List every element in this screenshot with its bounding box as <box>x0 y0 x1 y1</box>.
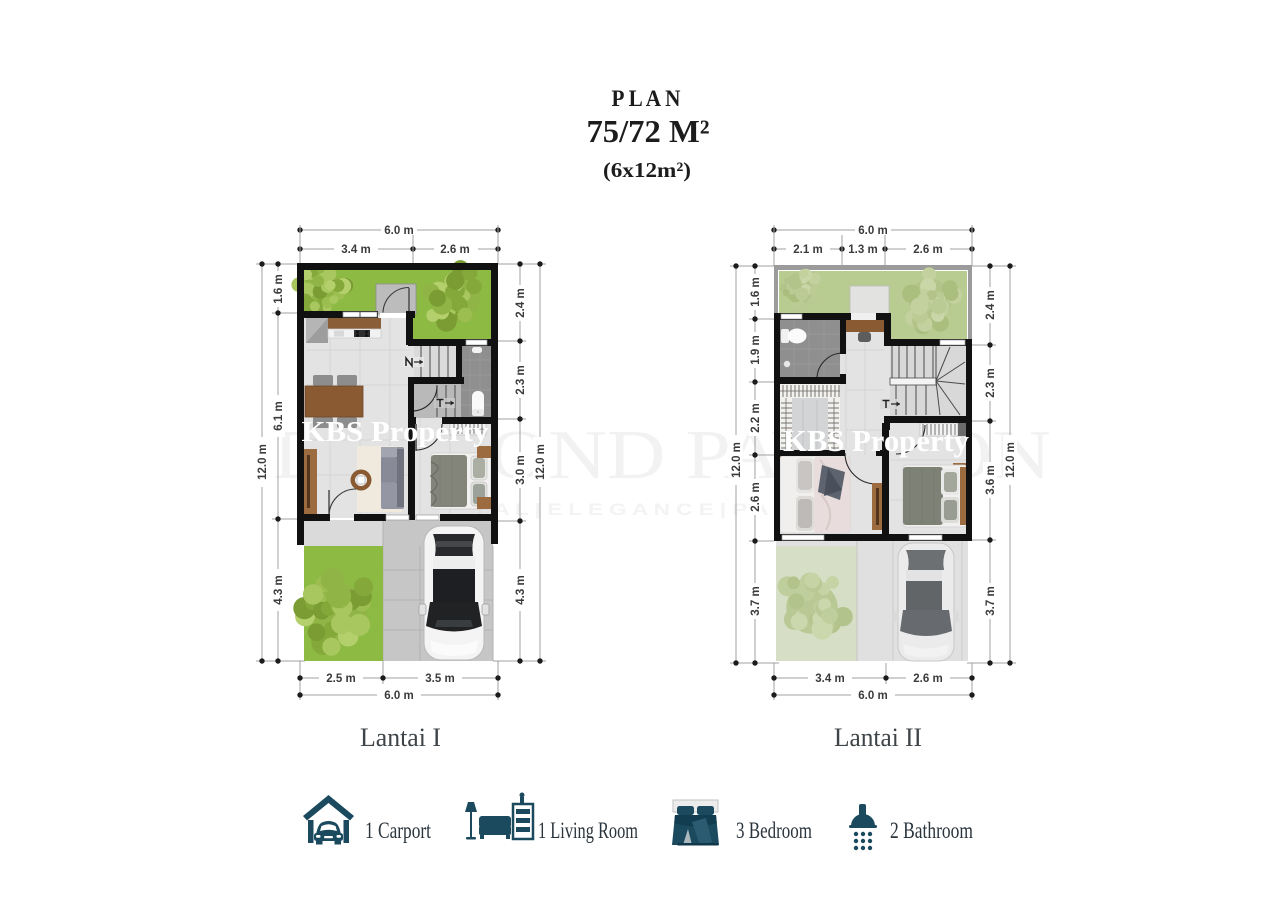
svg-text:KBS Property: KBS Property <box>302 416 490 448</box>
svg-text:Lantai II: Lantai II <box>834 723 922 752</box>
svg-text:3.4 m: 3.4 m <box>815 673 844 685</box>
svg-text:1.6 m: 1.6 m <box>750 277 762 306</box>
svg-text:6.0 m: 6.0 m <box>384 225 413 237</box>
svg-text:12.0 m: 12.0 m <box>731 442 743 478</box>
svg-text:1.3 m: 1.3 m <box>848 244 877 256</box>
svg-text:75/72 M²: 75/72 M² <box>587 113 710 149</box>
svg-text:3.5 m: 3.5 m <box>425 673 454 685</box>
svg-text:KBS Property: KBS Property <box>783 423 969 458</box>
svg-text:3.6 m: 3.6 m <box>985 465 997 494</box>
svg-text:3.4 m: 3.4 m <box>341 244 370 256</box>
svg-text:2.4 m: 2.4 m <box>515 288 527 317</box>
svg-text:A L | E L E G A N C E | P: A L | E L E G A N C E | P A <box>494 500 769 519</box>
svg-text:1 Carport: 1 Carport <box>365 818 431 843</box>
svg-text:4.3 m: 4.3 m <box>515 575 527 604</box>
svg-text:2.4 m: 2.4 m <box>985 290 997 319</box>
svg-text:3 Bedroom: 3 Bedroom <box>736 818 812 843</box>
svg-text:3.0 m: 3.0 m <box>515 455 527 484</box>
svg-text:2.6 m: 2.6 m <box>913 673 942 685</box>
svg-text:2.6 m: 2.6 m <box>913 244 942 256</box>
svg-text:3.7 m: 3.7 m <box>985 586 997 615</box>
svg-text:3.7 m: 3.7 m <box>750 586 762 615</box>
svg-text:12.0 m: 12.0 m <box>1005 442 1017 478</box>
svg-text:12.0 m: 12.0 m <box>257 444 269 480</box>
svg-text:2 Bathroom: 2 Bathroom <box>890 818 973 843</box>
svg-text:6.0 m: 6.0 m <box>858 690 887 702</box>
svg-text:Lantai I: Lantai I <box>360 723 441 752</box>
svg-text:2.3 m: 2.3 m <box>515 365 527 394</box>
svg-text:1 Living Room: 1 Living Room <box>538 818 638 843</box>
svg-text:1.6 m: 1.6 m <box>273 274 285 303</box>
svg-text:P L A N: P L A N <box>612 86 681 111</box>
svg-text:2.3 m: 2.3 m <box>985 368 997 397</box>
svg-text:6.0 m: 6.0 m <box>384 690 413 702</box>
svg-text:1.9 m: 1.9 m <box>750 335 762 364</box>
svg-text:12.0 m: 12.0 m <box>535 444 547 480</box>
svg-text:(6x12m²): (6x12m²) <box>603 158 691 182</box>
svg-text:6.0 m: 6.0 m <box>858 225 887 237</box>
svg-text:2.2 m: 2.2 m <box>750 403 762 432</box>
svg-text:2.6 m: 2.6 m <box>440 244 469 256</box>
svg-text:2.5 m: 2.5 m <box>326 673 355 685</box>
svg-text:4.3 m: 4.3 m <box>273 575 285 604</box>
svg-text:2.6 m: 2.6 m <box>750 482 762 511</box>
svg-text:2.1 m: 2.1 m <box>793 244 822 256</box>
svg-text:6.1 m: 6.1 m <box>273 401 285 430</box>
